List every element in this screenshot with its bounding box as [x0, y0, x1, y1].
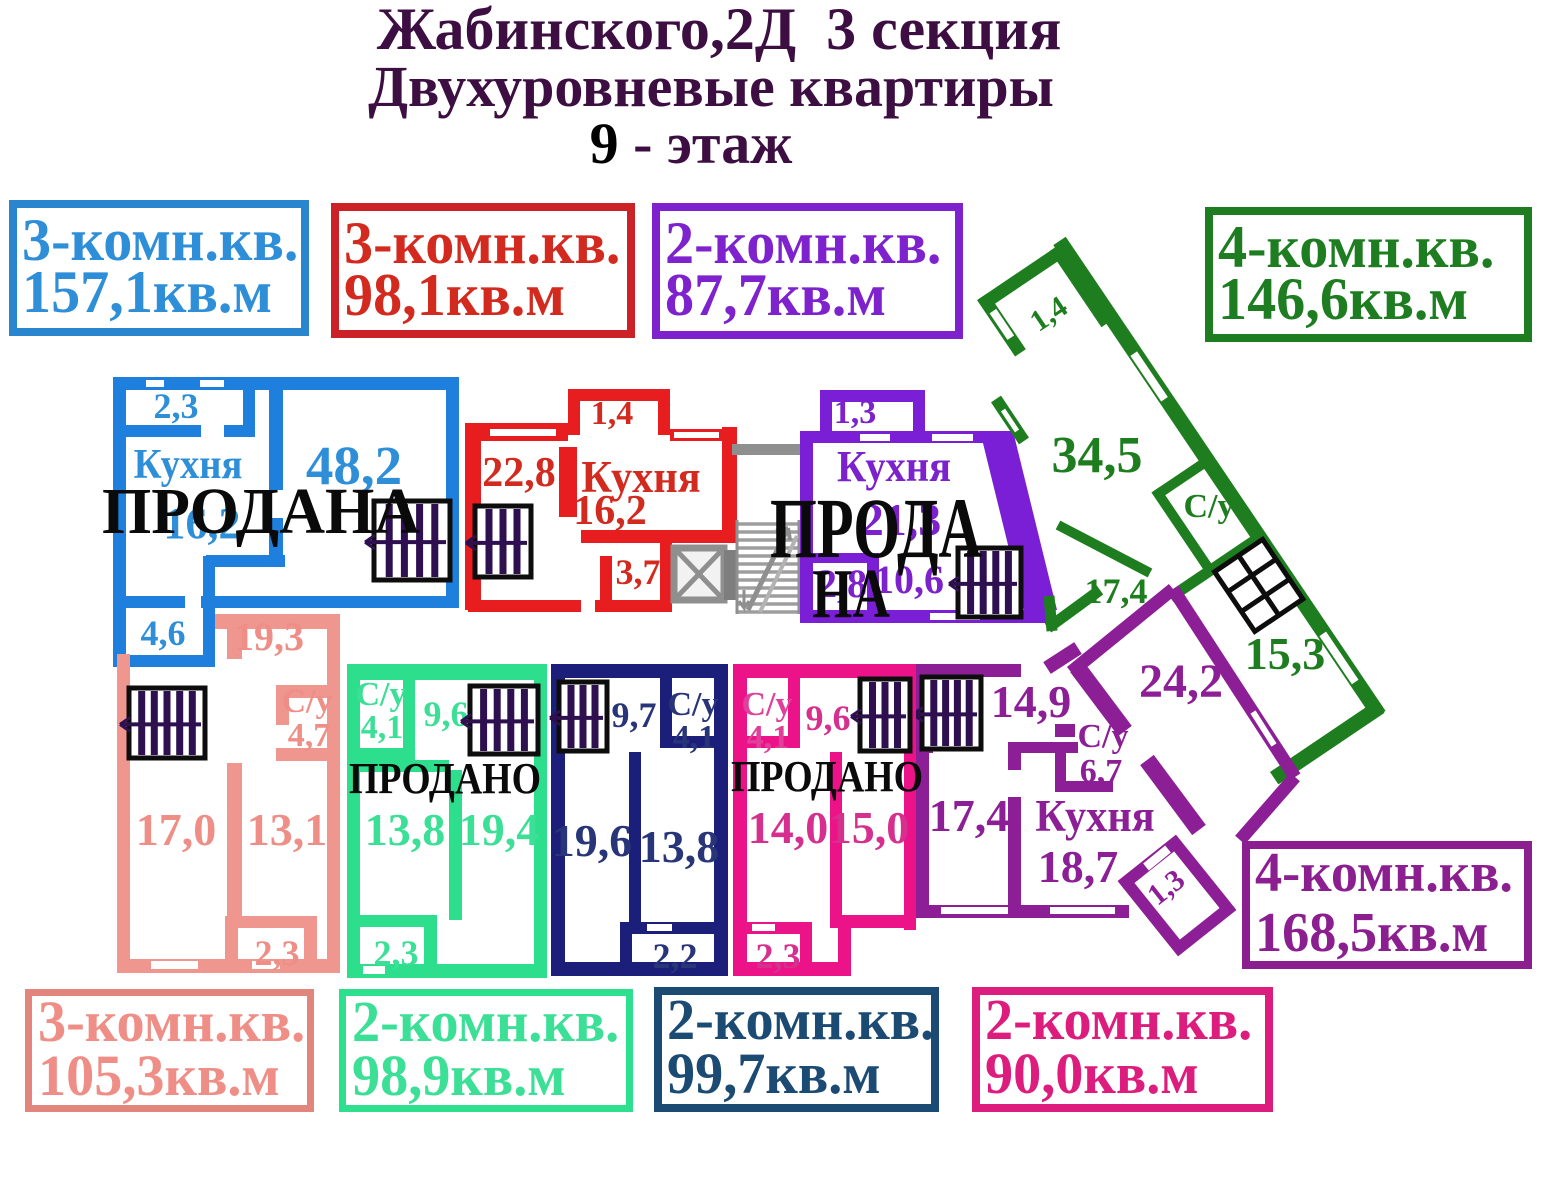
svg-text:15,3: 15,3 [1245, 628, 1326, 679]
svg-text:Двухуровневые квартиры: Двухуровневые квартиры [368, 54, 1054, 119]
svg-text:4,7: 4,7 [288, 717, 331, 754]
svg-text:14,9: 14,9 [991, 676, 1072, 727]
svg-text:Кухня: Кухня [1035, 790, 1154, 841]
svg-text:С/у: С/у [282, 683, 333, 720]
svg-text:3,7: 3,7 [616, 552, 661, 592]
svg-text:16,2: 16,2 [573, 488, 647, 534]
svg-text:24,2: 24,2 [1139, 655, 1223, 708]
svg-text:4,1: 4,1 [673, 719, 716, 756]
svg-text:НА: НА [812, 556, 890, 633]
svg-text:С/у: С/у [356, 676, 407, 713]
svg-text:ПРОДАНО: ПРОДАНО [731, 751, 923, 800]
svg-text:34,5: 34,5 [1052, 427, 1143, 484]
svg-text:9,6: 9,6 [424, 694, 469, 734]
svg-text:2,3: 2,3 [374, 933, 419, 973]
svg-text:1,3: 1,3 [834, 394, 877, 431]
svg-text:4-комн.кв.: 4-комн.кв. [1255, 841, 1513, 903]
svg-text:6,7: 6,7 [1080, 753, 1123, 790]
svg-text:1,4: 1,4 [591, 395, 634, 432]
svg-text:13,8: 13,8 [639, 821, 720, 872]
svg-text:19,4: 19,4 [459, 804, 540, 855]
svg-text:105,3кв.м: 105,3кв.м [38, 1044, 280, 1108]
svg-text:98,1кв.м: 98,1кв.м [344, 261, 565, 328]
svg-text:4,1: 4,1 [361, 709, 404, 746]
svg-text:2,2: 2,2 [653, 936, 698, 976]
svg-text:2,3: 2,3 [756, 936, 801, 976]
svg-text:98,9кв.м: 98,9кв.м [352, 1044, 566, 1108]
svg-text:17,4: 17,4 [929, 790, 1010, 841]
svg-text:15,0: 15,0 [829, 802, 910, 853]
svg-text:2,3: 2,3 [154, 386, 199, 426]
svg-text:18,7: 18,7 [1038, 841, 1119, 892]
svg-text:22,8: 22,8 [482, 450, 556, 496]
svg-text:19,6: 19,6 [552, 815, 633, 866]
svg-text:99,7кв.м: 99,7кв.м [667, 1042, 881, 1106]
svg-text:9,6: 9,6 [806, 698, 851, 738]
svg-text:Жабинского,2Д 3 секция: Жабинского,2Д 3 секция [377, 0, 1062, 62]
svg-text:157,1кв.м: 157,1кв.м [22, 258, 272, 325]
svg-text:146,6кв.м: 146,6кв.м [1218, 265, 1468, 332]
svg-text:С/у: С/у [668, 686, 719, 723]
svg-text:С/у: С/у [1078, 718, 1129, 755]
svg-text:19,3: 19,3 [234, 614, 304, 659]
svg-text:13,8: 13,8 [365, 804, 446, 855]
svg-text:87,7кв.м: 87,7кв.м [665, 261, 886, 328]
svg-text:14,0: 14,0 [748, 802, 829, 853]
svg-text:9 - этаж: 9 - этаж [590, 111, 793, 176]
svg-text:ПРОДАНО: ПРОДАНО [349, 753, 541, 802]
svg-text:17,0: 17,0 [136, 804, 217, 855]
svg-text:9,7: 9,7 [612, 695, 657, 735]
svg-text:90,0кв.м: 90,0кв.м [985, 1042, 1199, 1106]
svg-text:13,1: 13,1 [247, 804, 328, 855]
svg-text:С/у: С/у [1184, 488, 1235, 525]
svg-text:2,3: 2,3 [255, 933, 300, 973]
svg-text:4,6: 4,6 [141, 613, 186, 653]
svg-text:С/у: С/у [742, 686, 793, 723]
svg-text:ПРОДАНА: ПРОДАНА [102, 474, 420, 547]
svg-text:168,5кв.м: 168,5кв.м [1255, 901, 1488, 963]
svg-text:17,4: 17,4 [1085, 571, 1148, 611]
